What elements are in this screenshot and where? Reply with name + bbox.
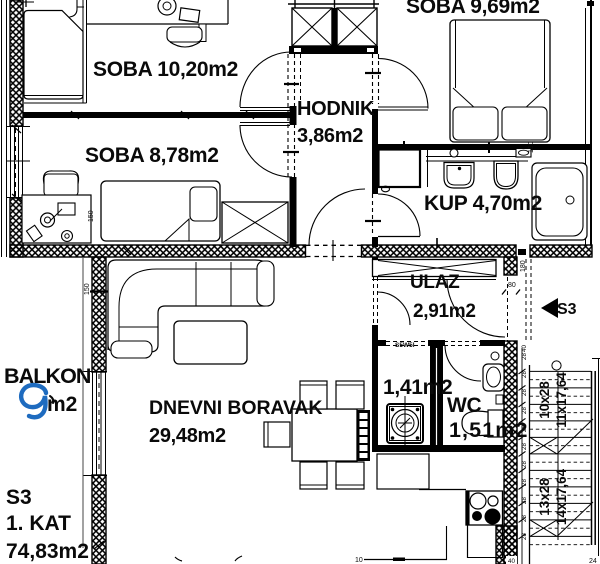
svg-text:28: 28 (521, 407, 528, 414)
svg-text:28: 28 (521, 461, 528, 468)
svg-text:3,86m2: 3,86m2 (297, 125, 363, 147)
svg-text:80: 80 (508, 282, 516, 289)
svg-text:BALKON: BALKON (4, 364, 91, 388)
svg-text:28: 28 (521, 497, 528, 504)
svg-text:1,41m2: 1,41m2 (383, 376, 452, 399)
svg-text:28: 28 (521, 479, 528, 486)
svg-text:SOBA 8,78m2: SOBA 8,78m2 (85, 144, 219, 167)
svg-text:28: 28 (521, 443, 528, 450)
svg-text:13x28: 13x28 (537, 478, 552, 516)
svg-text:HODNIK: HODNIK (297, 98, 375, 120)
svg-text:ULAZ: ULAZ (410, 272, 460, 293)
svg-text:40: 40 (508, 558, 515, 564)
svg-text:150: 150 (84, 283, 91, 295)
svg-text:2,91m2: 2,91m2 (413, 301, 476, 322)
svg-text:28: 28 (521, 371, 528, 378)
svg-text:SOBA 9,69m2: SOBA 9,69m2 (406, 0, 540, 18)
svg-text:24: 24 (589, 558, 597, 564)
svg-text:1,51m2: 1,51m2 (449, 418, 529, 442)
svg-text:40: 40 (521, 345, 528, 352)
svg-text:KUP 4,70m2: KUP 4,70m2 (424, 192, 542, 215)
svg-text:S3: S3 (6, 486, 32, 509)
svg-text:WC: WC (447, 394, 482, 417)
svg-text:28: 28 (521, 533, 528, 540)
svg-text:10x28: 10x28 (537, 381, 552, 419)
svg-text:10: 10 (355, 557, 363, 564)
svg-text:29,48m2: 29,48m2 (149, 425, 226, 447)
svg-text:150: 150 (88, 210, 95, 222)
svg-text:28: 28 (521, 515, 528, 522)
svg-text:S5W5l: S5W5l (395, 342, 415, 349)
svg-text:190: 190 (528, 141, 535, 153)
svg-text:11x17,64: 11x17,64 (554, 372, 569, 428)
svg-text:SOBA 10,20m2: SOBA 10,20m2 (93, 58, 238, 81)
svg-text:1. KAT: 1. KAT (6, 512, 71, 535)
svg-text:28: 28 (521, 389, 528, 396)
svg-text:S3: S3 (557, 301, 577, 318)
svg-text:14x17,64: 14x17,64 (554, 468, 569, 525)
svg-text:DNEVNI BORAVAK: DNEVNI BORAVAK (149, 397, 322, 419)
svg-text:74,83m2: 74,83m2 (6, 540, 89, 563)
svg-text:28: 28 (521, 353, 528, 360)
svg-text:180: 180 (520, 260, 527, 272)
